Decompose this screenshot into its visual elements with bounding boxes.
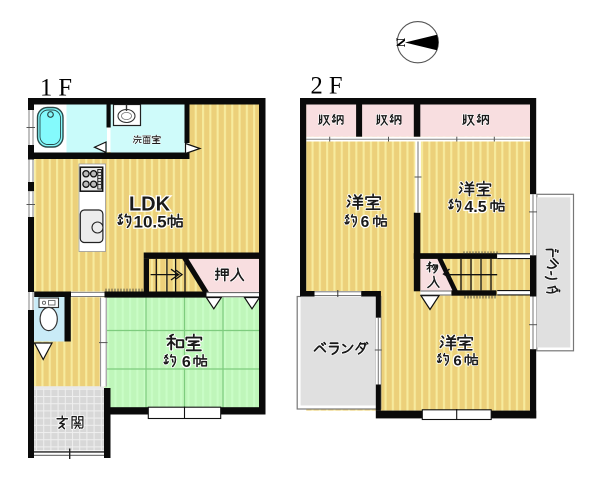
svg-text:1 F: 1 F [40,75,72,102]
svg-text:10.5: 10.5 [134,212,167,231]
svg-text:6: 6 [182,354,191,371]
svg-text:4.5: 4.5 [464,199,486,216]
svg-text:6: 6 [453,352,461,369]
svg-text:2 F: 2 F [311,73,343,100]
svg-text:N: N [393,38,408,48]
svg-text:6: 6 [361,214,370,231]
